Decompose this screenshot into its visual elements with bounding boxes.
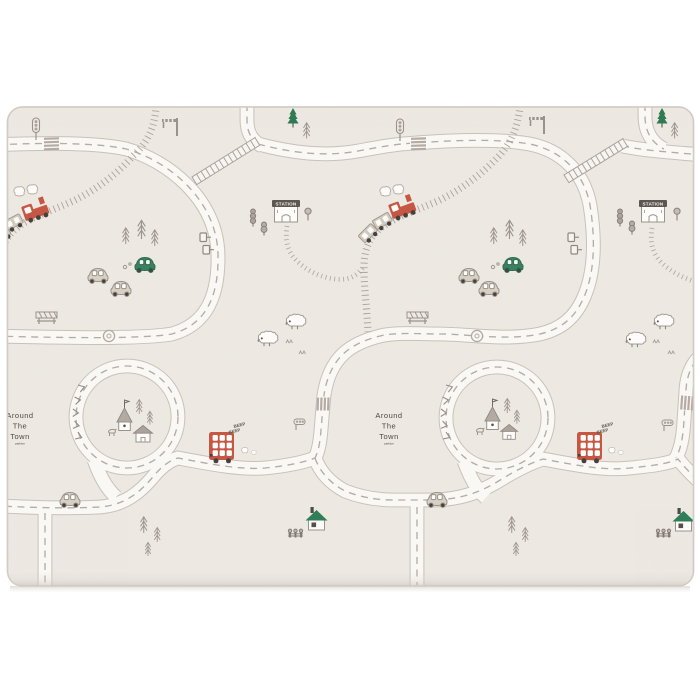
svg-text:The: The xyxy=(382,422,396,431)
svg-text:Around: Around xyxy=(6,411,33,420)
svg-text:parklon: parklon xyxy=(384,442,394,446)
svg-text:Town: Town xyxy=(10,432,30,441)
svg-text:parklon: parklon xyxy=(15,442,25,446)
svg-text:The: The xyxy=(13,422,27,431)
svg-text:Town: Town xyxy=(379,432,399,441)
svg-text:Around: Around xyxy=(375,411,402,420)
